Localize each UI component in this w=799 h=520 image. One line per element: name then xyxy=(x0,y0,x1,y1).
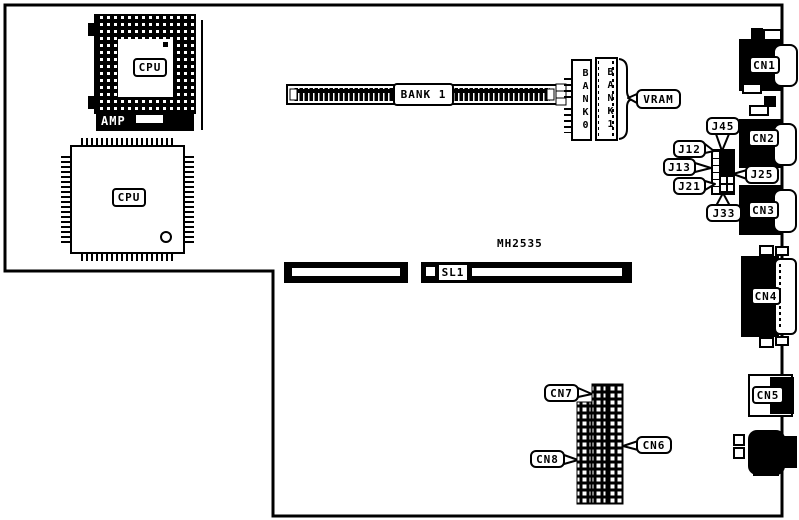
cn7-label: CN7 xyxy=(544,384,579,402)
vram-label: VRAM xyxy=(636,89,681,109)
jumper-j33-label: J33 xyxy=(706,204,742,222)
jumper-j45-label: J45 xyxy=(706,117,740,135)
motherboard-diagram: CPU AMP CPU BANK 1 BANK0 BANK1 VRAM J45 … xyxy=(0,0,799,520)
diagram-linework xyxy=(0,0,799,520)
vram-slots xyxy=(556,58,634,140)
pin-header-cn7 xyxy=(592,384,606,504)
cn6-label: CN6 xyxy=(636,436,672,454)
amp-label: AMP xyxy=(101,113,135,129)
cn2-label: CN2 xyxy=(748,129,779,147)
cn8-label: CN8 xyxy=(530,450,565,468)
bank0-vertical-label: BANK0 xyxy=(573,63,590,138)
pin-header-cn8 xyxy=(577,402,591,504)
cpu-qfp-label: CPU xyxy=(112,188,146,207)
cn5-label: CN5 xyxy=(752,386,784,404)
cn3-label: CN3 xyxy=(748,201,779,219)
jumper-j25-label: J25 xyxy=(745,165,779,184)
bank1-vertical-label: BANK1 xyxy=(598,61,615,138)
jumper-j12-label: J12 xyxy=(673,140,706,158)
jumper-block xyxy=(711,149,735,195)
jumper-j21-label: J21 xyxy=(673,177,706,195)
expansion-slot-a xyxy=(284,262,408,283)
board-model-text: MH2535 xyxy=(497,236,557,250)
cpu-socket-label: CPU xyxy=(133,58,167,77)
cn1-label: CN1 xyxy=(749,56,780,74)
cn4-label: CN4 xyxy=(751,287,781,305)
jumper-j13-label: J13 xyxy=(663,158,696,176)
sl1-slot-label: SL1 xyxy=(437,263,469,282)
power-connector xyxy=(734,430,797,476)
bank1-slot-label: BANK 1 xyxy=(393,83,454,106)
pin-header-cn6 xyxy=(607,384,623,504)
